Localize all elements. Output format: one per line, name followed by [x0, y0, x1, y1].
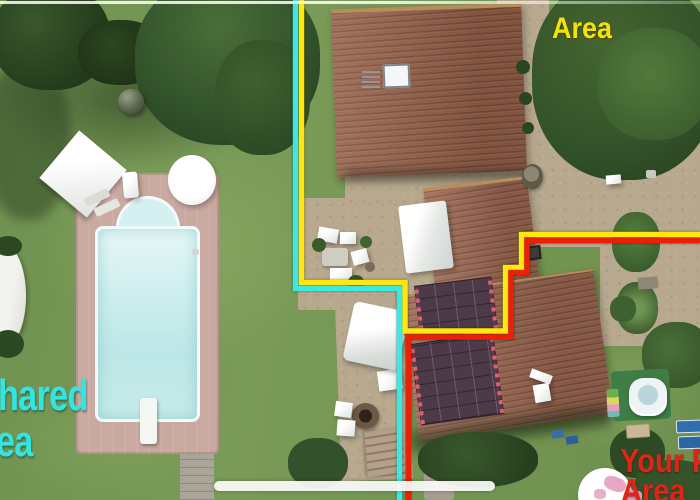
shared-area-label-line1: hared — [0, 374, 88, 418]
aerial-property-photo: Area hared ea Your P Area — [0, 0, 700, 500]
photo-top-edge-line — [0, 1, 700, 4]
boundary-line-yellow — [302, 0, 700, 331]
private-area-label-line2: Area — [621, 474, 686, 500]
top-area-label: Area — [552, 14, 612, 44]
boundary-lines-overlay — [0, 0, 700, 500]
shared-area-label-line2: ea — [0, 420, 33, 464]
home-indicator-bar[interactable] — [214, 481, 495, 491]
boundary-line-cyan — [296, 0, 400, 500]
